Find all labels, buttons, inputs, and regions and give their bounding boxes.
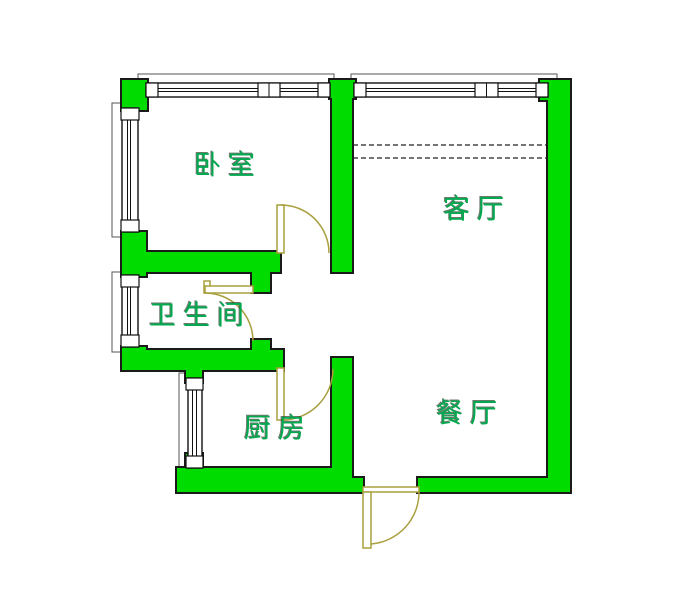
floor-plan-drawing xyxy=(0,0,686,600)
room-label-dining-room: 餐厅 xyxy=(436,401,504,428)
bathroom-left-window xyxy=(121,275,139,347)
room-label-living-room: 客厅 xyxy=(443,197,511,224)
wall-segment xyxy=(332,358,352,492)
wall-segment xyxy=(122,252,280,272)
wall-segment xyxy=(122,80,147,110)
living-room-top-window xyxy=(354,83,548,97)
bedroom-door xyxy=(277,205,329,253)
wall-segment xyxy=(418,478,570,492)
living-room-dashed-lines xyxy=(353,145,548,158)
bedroom-left-window xyxy=(121,108,139,232)
wall-segment xyxy=(330,80,355,98)
wall-segment xyxy=(252,272,270,292)
window-sill xyxy=(112,103,122,237)
wall-segment xyxy=(548,80,570,492)
room-label-bedroom: 卧室 xyxy=(194,153,262,180)
window-sill xyxy=(138,74,334,83)
wall-segment xyxy=(332,81,352,272)
wall-segment xyxy=(122,350,283,370)
bedroom-top-window xyxy=(146,83,330,97)
entrance-door xyxy=(363,487,419,548)
kitchen-door xyxy=(277,368,333,420)
room-label-kitchen: 厨房 xyxy=(244,416,312,443)
window-sill xyxy=(351,74,557,83)
floor-plan: 卧室 客厅 卫生间 厨房 餐厅 xyxy=(0,0,686,600)
kitchen-left-window xyxy=(186,378,203,468)
wall-segment xyxy=(177,468,333,492)
room-label-bathroom: 卫生间 xyxy=(149,303,251,330)
